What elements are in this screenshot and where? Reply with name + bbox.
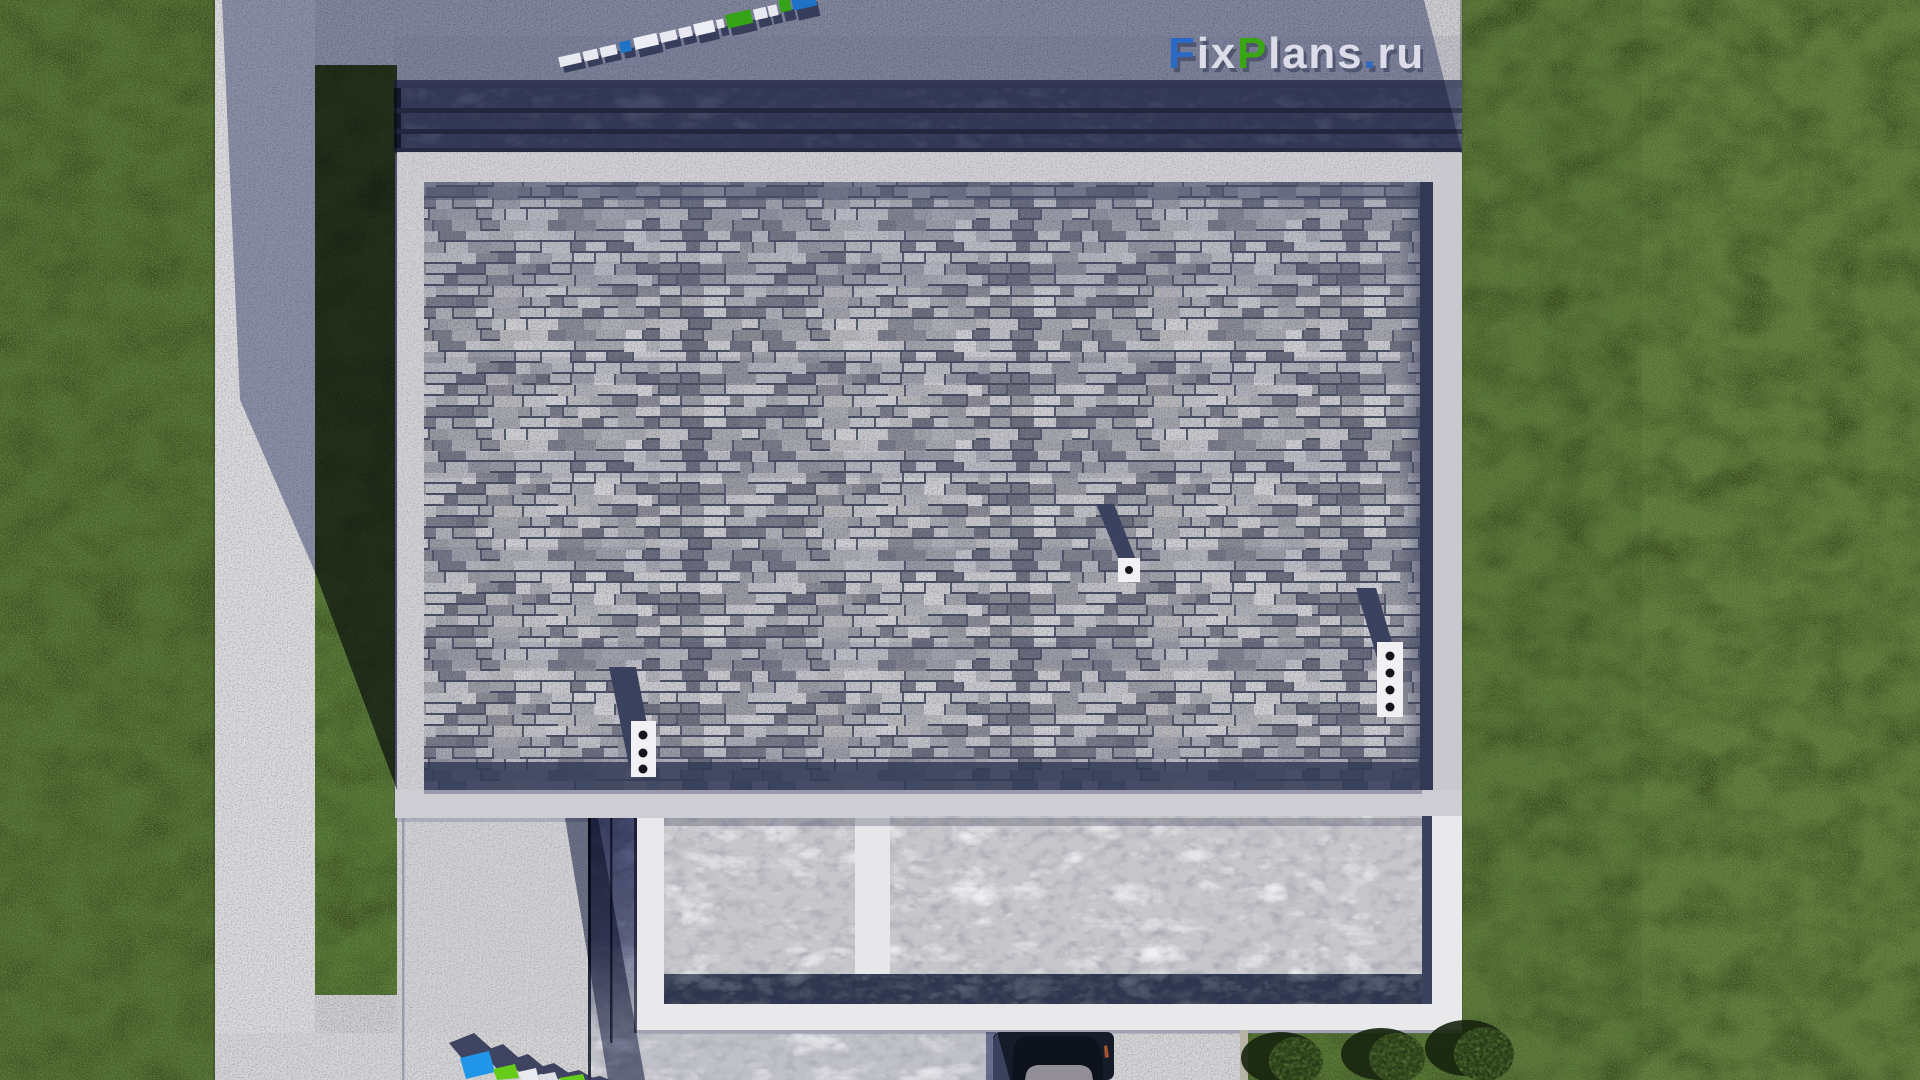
svg-text:FixPlans.ru: FixPlans.ru <box>1168 29 1425 78</box>
